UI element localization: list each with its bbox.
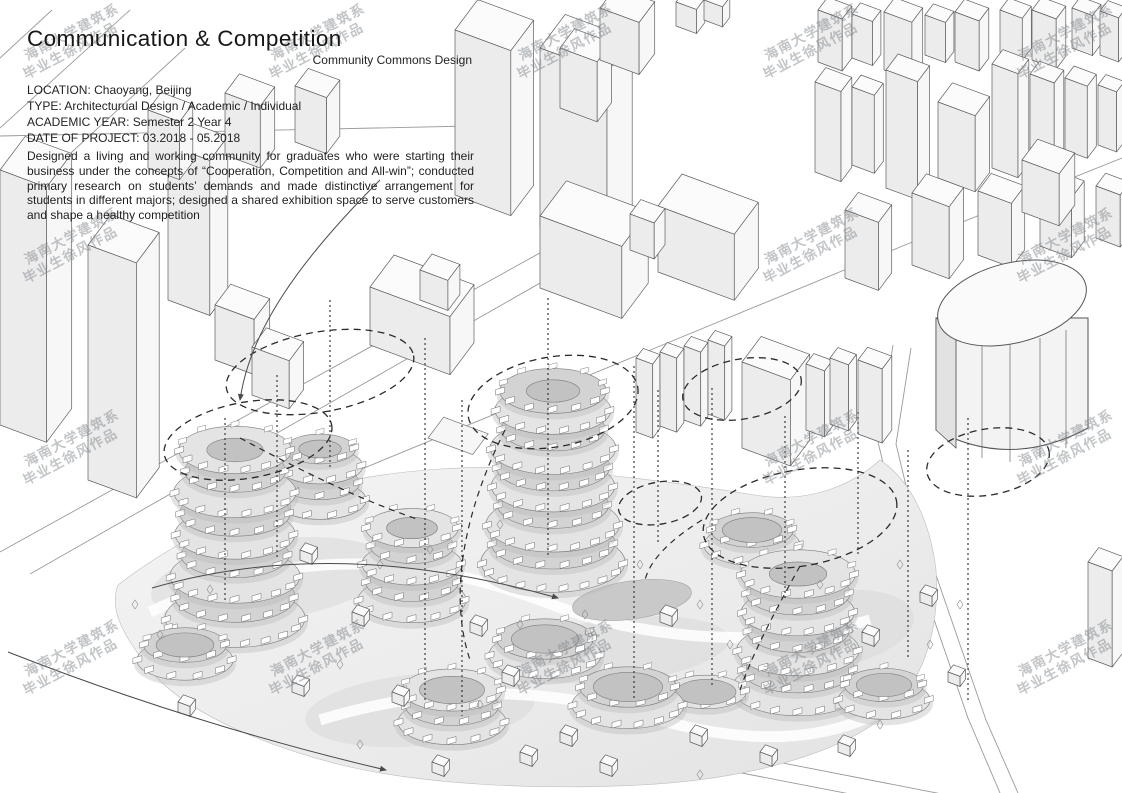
project-description: Designed a living and working community … [27, 149, 474, 223]
meta-academic-year: ACADEMIC YEAR: Semester 2 Year 4 [27, 114, 301, 130]
page-subtitle: Community Commons Design [27, 53, 472, 67]
meta-type: TYPE: Architecturual Design / Academic /… [27, 98, 301, 114]
meta-date: DATE OF PROJECT: 03.2018 - 05.2018 [27, 130, 301, 146]
page-title: Communication & Competition [27, 26, 342, 52]
project-meta: LOCATION: Chaoyang, Beijing TYPE: Archit… [27, 82, 301, 146]
meta-location: LOCATION: Chaoyang, Beijing [27, 82, 301, 98]
portfolio-board: 海南大学建筑系毕业生徐风作品海南大学建筑系毕业生徐风作品海南大学建筑系毕业生徐风… [0, 0, 1122, 793]
